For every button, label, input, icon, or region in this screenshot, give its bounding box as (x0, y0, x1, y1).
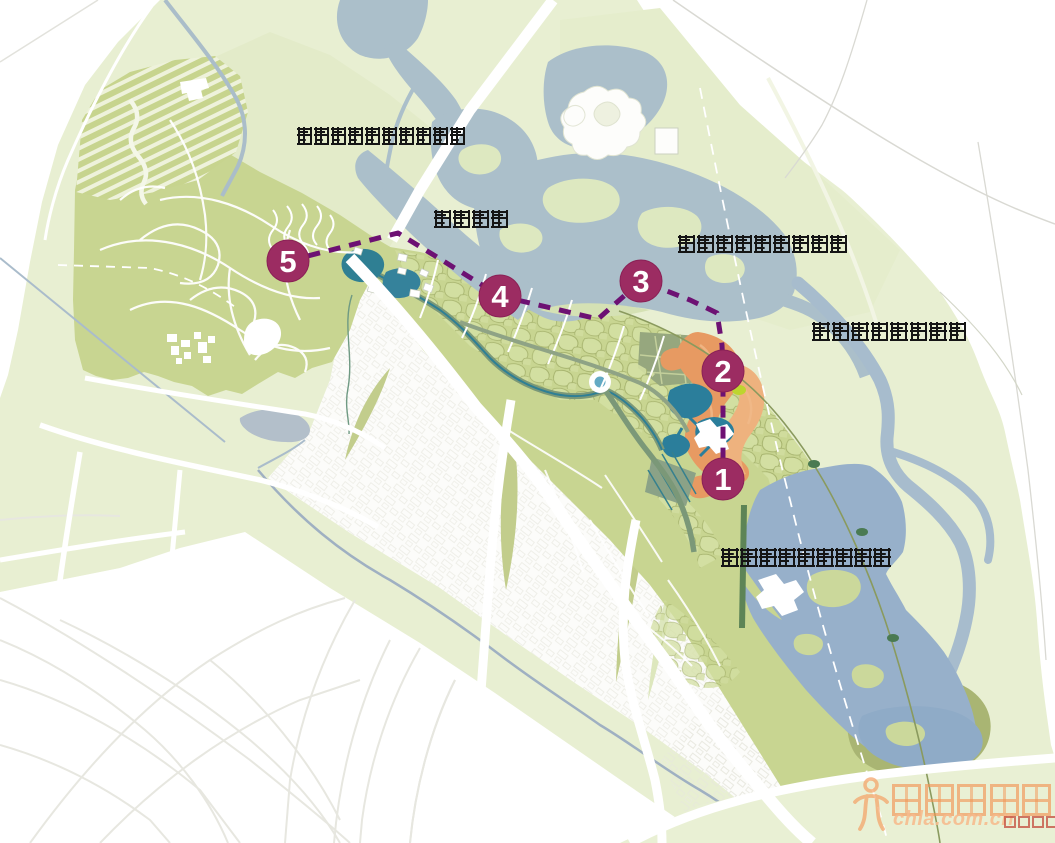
svg-text:2: 2 (714, 354, 731, 389)
svg-text:5: 5 (279, 244, 296, 279)
svg-text:1: 1 (714, 462, 731, 497)
svg-text:3: 3 (632, 264, 649, 299)
svg-text:4: 4 (491, 279, 509, 314)
